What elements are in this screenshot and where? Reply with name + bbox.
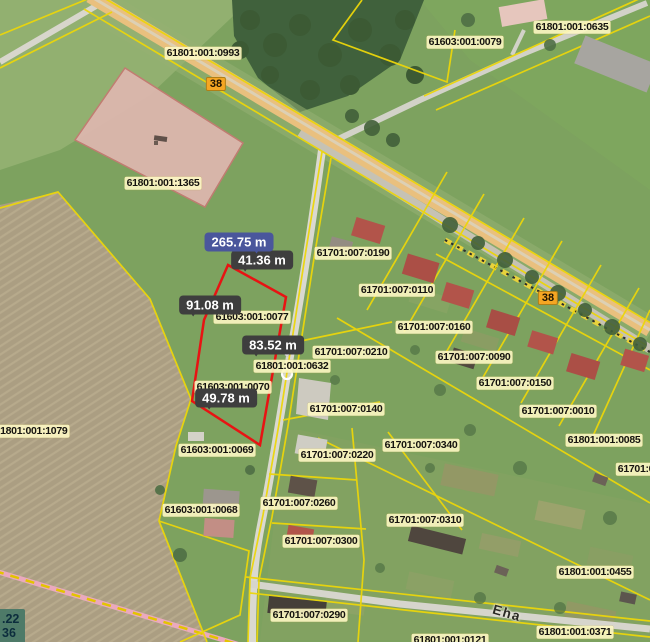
parcel-label: 61701:007:0310	[387, 514, 464, 527]
measurement-segment-badge: 83.52 m	[242, 336, 304, 355]
measurement-total-badge: 265.75 m	[205, 233, 274, 252]
parcel-label: 61701:007:0160	[396, 321, 473, 334]
parcel-label: 61701:007:0300	[283, 535, 360, 548]
parcel-label: 61801:001:0085	[566, 434, 643, 447]
parcel-label: 61801:001:0635	[534, 21, 611, 34]
parcel-label: 61701:007:0190	[315, 247, 392, 260]
parcel-label: 61603:001:0079	[427, 36, 504, 49]
parcel-label: 61801:001:0455	[557, 566, 634, 579]
road-number-badge: 38	[538, 291, 558, 305]
parcel-label: 61701:0	[616, 463, 650, 476]
parcel-label: 61701:007:0220	[299, 449, 376, 462]
parcel-label: 61701:007:0140	[308, 403, 385, 416]
parcel-label: 61801:001:0121	[412, 634, 489, 642]
measurement-segment-badge: 91.08 m	[179, 296, 241, 315]
parcel-label: 61801:001:1365	[125, 177, 202, 190]
map-viewport[interactable]: 265.75 m Eha .22 36 61801:001:099361603:…	[0, 0, 650, 642]
parcel-label: 61701:007:0210	[313, 346, 390, 359]
parcel-label: 61701:007:0150	[477, 377, 554, 390]
parcel-label: 61701:007:0090	[436, 351, 513, 364]
measurement-segment-badge: 49.78 m	[195, 389, 257, 408]
parcel-label: 61701:007:0290	[271, 609, 348, 622]
parcel-label: 61801:001:1079	[0, 425, 69, 438]
parcel-label: 61603:001:0069	[179, 444, 256, 457]
corner-readout: .22 36	[0, 609, 25, 642]
parcel-label: 61801:001:0993	[165, 47, 242, 60]
parcel-label: 61701:007:0340	[383, 439, 460, 452]
parcel-label: 61701:007:0110	[359, 284, 435, 297]
parcel-label: 61603:001:0068	[163, 504, 240, 517]
parcel-label: 61701:007:0260	[261, 497, 338, 510]
parcel-label: 61801:001:0632	[254, 360, 331, 373]
measurement-segment-badge: 41.36 m	[231, 251, 293, 270]
parcel-label: 61801:001:0371	[537, 626, 614, 639]
readout-line-2: 36	[2, 626, 19, 640]
parcel-label: 61701:007:0010	[520, 405, 597, 418]
readout-line-1: .22	[2, 612, 19, 626]
road-number-badge: 38	[206, 77, 226, 91]
